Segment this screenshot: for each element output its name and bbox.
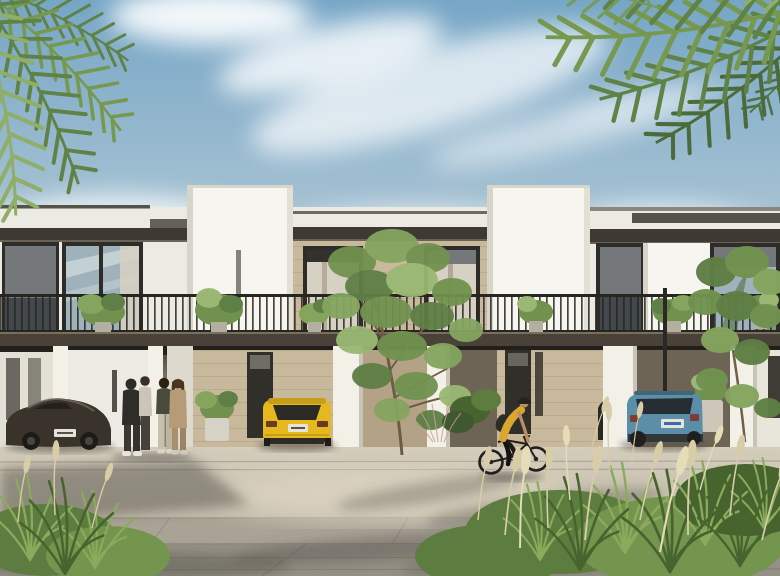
blue-suv <box>619 391 709 451</box>
rear-window <box>636 398 693 414</box>
yellow-hatchback <box>257 398 337 452</box>
right-parapet-edge <box>590 207 780 211</box>
dark-pole <box>663 288 667 396</box>
right-roof-band <box>632 213 780 223</box>
right-stone-wall <box>497 350 603 454</box>
rear-window <box>273 405 321 420</box>
rear-diffuser <box>268 438 326 444</box>
scene-canvas <box>0 0 780 576</box>
left-roof-edge <box>0 205 150 209</box>
taillight-right <box>317 421 328 427</box>
roller-blind-left <box>5 246 56 298</box>
rendered-scene <box>0 0 780 576</box>
mid-parapet-edge <box>293 211 487 214</box>
taillight-left <box>266 421 277 427</box>
taillight-right <box>690 414 699 421</box>
roof-rails <box>634 391 694 395</box>
